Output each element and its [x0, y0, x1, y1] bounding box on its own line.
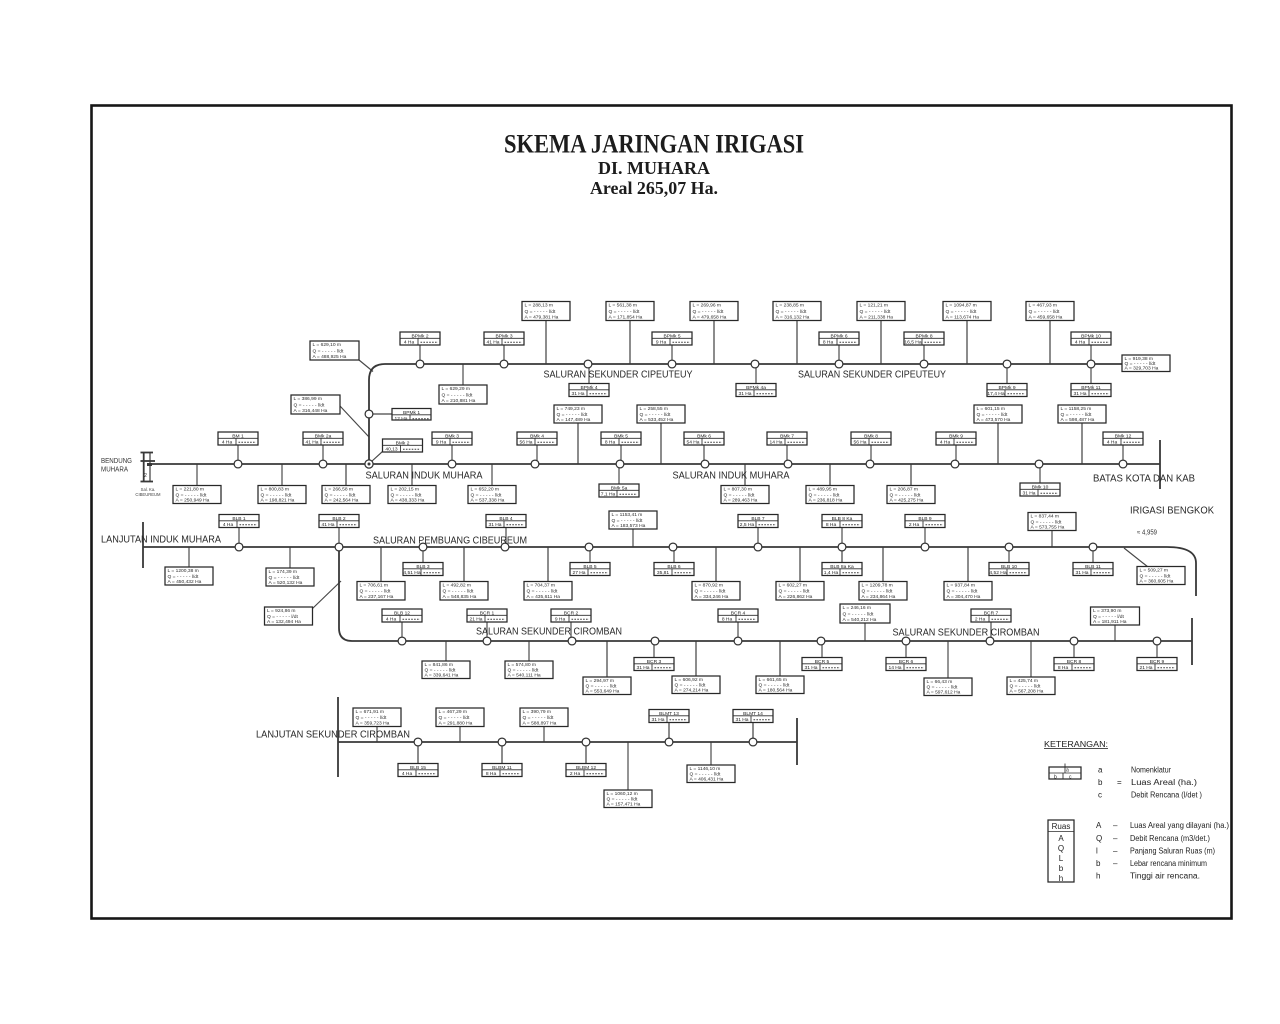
- svg-text:Q = - - - - - l/dt: Q = - - - - - l/dt: [1140, 573, 1171, 579]
- svg-text:Q = - - - - - l/dt: Q = - - - - - l/dt: [695, 589, 726, 595]
- svg-text:A = 597,612 Ha: A = 597,612 Ha: [927, 690, 961, 696]
- svg-text:2: 2: [144, 473, 147, 479]
- svg-text:–: –: [1113, 847, 1118, 856]
- svg-text:A = 236,818 Ha: A = 236,818 Ha: [809, 498, 843, 504]
- svg-text:31 Ha: 31 Ha: [636, 665, 649, 671]
- svg-text:L = 246,16 m: L = 246,16 m: [843, 605, 872, 611]
- svg-text:A = 147,489 Ha: A = 147,489 Ha: [557, 417, 591, 423]
- svg-text:l: l: [1096, 847, 1098, 856]
- svg-text:Q = - - - - - l/dt: Q = - - - - - l/dt: [640, 412, 671, 418]
- svg-text:L = 924,86 m: L = 924,86 m: [267, 608, 296, 614]
- svg-text:Luas Areal (ha.): Luas Areal (ha.): [1131, 778, 1197, 787]
- svg-text:L = 467,29 m: L = 467,29 m: [439, 709, 468, 715]
- svg-text:BPMk 1: BPMk 1: [403, 410, 420, 416]
- svg-text:8 Ha: 8 Ha: [823, 340, 834, 346]
- svg-text:Q = - - - - - l/dt: Q = - - - - - l/dt: [313, 348, 344, 354]
- svg-text:Areal 265,07 Ha.: Areal 265,07 Ha.: [590, 178, 718, 198]
- svg-text:Q = - - - - - l/dt: Q = - - - - - l/dt: [523, 715, 554, 721]
- svg-text:BLB 15: BLB 15: [410, 765, 426, 771]
- svg-text:BCR 3: BCR 3: [647, 659, 662, 665]
- svg-text:SKEMA JARINGAN IRIGASI: SKEMA JARINGAN IRIGASI: [504, 130, 804, 159]
- svg-text:BMk 9: BMk 9: [949, 433, 963, 439]
- svg-text:BLMT 14: BLMT 14: [743, 711, 763, 717]
- svg-text:BPMk 10: BPMk 10: [1081, 333, 1101, 339]
- svg-text:Q: Q: [1096, 834, 1102, 843]
- svg-text:A = 113,674 Ha: A = 113,674 Ha: [946, 315, 980, 321]
- svg-text:A = 520,132 Ha: A = 520,132 Ha: [269, 580, 303, 586]
- svg-text:Q = - - - - - l/dt: Q = - - - - - l/dt: [471, 492, 502, 498]
- svg-text:–: –: [1113, 834, 1118, 843]
- svg-text:Q = - - - - - l/dt: Q = - - - - - l/dt: [356, 715, 387, 721]
- svg-text:4 Ha: 4 Ha: [940, 440, 951, 446]
- svg-text:b: b: [1098, 778, 1103, 787]
- svg-text:A = 180,564 Ha: A = 180,564 Ha: [759, 688, 793, 694]
- svg-text:BLB 2: BLB 2: [332, 516, 346, 522]
- svg-text:21 Ha: 21 Ha: [469, 617, 482, 623]
- svg-text:Q = - - - - - l/dt: Q = - - - - - l/dt: [779, 589, 810, 595]
- svg-text:L = 1209,78 m: L = 1209,78 m: [862, 583, 893, 589]
- svg-text:L = 202,15 m: L = 202,15 m: [391, 487, 420, 493]
- svg-text:31 Ha: 31 Ha: [651, 717, 664, 723]
- svg-text:L = 661,65 m: L = 661,65 m: [759, 677, 788, 683]
- svg-text:9 Ha: 9 Ha: [436, 440, 447, 446]
- svg-text:L = 1146,10 m: L = 1146,10 m: [690, 766, 721, 772]
- svg-text:BLB 8 Ka: BLB 8 Ka: [832, 516, 853, 522]
- svg-text:BPMk 3: BPMk 3: [495, 333, 512, 339]
- svg-text:L = 174,39 m: L = 174,39 m: [269, 569, 298, 575]
- svg-text:L = 288,13 m: L = 288,13 m: [525, 303, 554, 309]
- svg-text:SALURAN SEKUNDER CIROMBAN: SALURAN SEKUNDER CIROMBAN: [893, 628, 1040, 639]
- svg-text:L = 602,27 m: L = 602,27 m: [779, 583, 808, 589]
- svg-text:Q = - - - - - l/dt: Q = - - - - - l/dt: [609, 309, 640, 315]
- svg-text:Q = - - - - - l/dt: Q = - - - - - l/dt: [862, 589, 893, 595]
- svg-text:SALURAN SEKUNDER CIPEUTEUY: SALURAN SEKUNDER CIPEUTEUY: [798, 370, 946, 381]
- svg-text:A = 329,703 Ha: A = 329,703 Ha: [1125, 366, 1159, 372]
- svg-text:Q = - - - - - l/dt: Q = - - - - - l/dt: [269, 575, 300, 581]
- svg-text:Q = - - - - - l/dt: Q = - - - - - l/dt: [557, 412, 588, 418]
- svg-text:7,1 Ha: 7,1 Ha: [601, 492, 616, 498]
- svg-text:Nomenklatur: Nomenklatur: [1131, 766, 1171, 775]
- svg-text:Q = - - - - - l/dt: Q = - - - - - l/dt: [693, 309, 724, 315]
- svg-text:Q = - - - - - l/dt: Q = - - - - - l/dt: [1029, 309, 1060, 315]
- svg-text:41 Ha: 41 Ha: [321, 522, 334, 528]
- svg-text:Q = - - - - - l/dt: Q = - - - - - l/dt: [525, 309, 556, 315]
- svg-text:L = 870,92 m: L = 870,92 m: [695, 583, 724, 589]
- svg-text:A = 459,658 Ha: A = 459,658 Ha: [1029, 315, 1063, 321]
- svg-text:BLMT 13: BLMT 13: [659, 711, 679, 717]
- svg-text:A = 289,463 Ha: A = 289,463 Ha: [724, 498, 758, 504]
- svg-text:Q = - - - - - l/dt: Q = - - - - - l/dt: [267, 614, 298, 620]
- svg-text:A = 291,880 Ha: A = 291,880 Ha: [439, 721, 473, 727]
- svg-text:BCR 4: BCR 4: [731, 610, 746, 616]
- svg-text:A = 537,338 Ha: A = 537,338 Ha: [471, 498, 505, 504]
- svg-text:c: c: [1098, 791, 1102, 800]
- svg-text:31 Ha: 31 Ha: [735, 717, 748, 723]
- svg-text:L: L: [1059, 854, 1064, 863]
- svg-text:Q = - - - - - l/dt: Q = - - - - - l/dt: [890, 492, 921, 498]
- svg-text:L = 258,55 m: L = 258,55 m: [640, 406, 669, 412]
- svg-text:54 Ha: 54 Ha: [686, 440, 699, 446]
- svg-text:Q = - - - - - l/dt: Q = - - - - - l/dt: [294, 402, 325, 408]
- svg-text:L = 66,43 m: L = 66,43 m: [927, 679, 953, 685]
- svg-text:Q = - - - - - l/dt: Q = - - - - - l/dt: [261, 492, 292, 498]
- svg-text:A = 183,573 Ha: A = 183,573 Ha: [612, 523, 646, 529]
- svg-text:A = 210,881 Ha: A = 210,881 Ha: [442, 398, 476, 404]
- svg-text:BLB 5: BLB 5: [583, 564, 597, 570]
- svg-text:35,81: 35,81: [657, 570, 670, 576]
- svg-text:4 Ha: 4 Ha: [223, 522, 234, 528]
- svg-text:L = 425,74 m: L = 425,74 m: [1010, 678, 1039, 684]
- svg-text:Q = - - - - - l/dt: Q = - - - - - l/dt: [860, 309, 891, 315]
- svg-text:L = 206,87 m: L = 206,87 m: [890, 487, 919, 493]
- svg-text:L = 1060,12 m: L = 1060,12 m: [607, 791, 638, 797]
- svg-text:BENDUNG: BENDUNG: [101, 458, 132, 465]
- svg-text:L = 837,44 m: L = 837,44 m: [1031, 514, 1060, 520]
- svg-text:4,52 Ha: 4,52 Ha: [989, 570, 1006, 576]
- svg-text:8 Ha: 8 Ha: [1058, 665, 1069, 671]
- svg-text:Q = - - - - - l/dt: Q = - - - - - l/dt: [442, 392, 473, 398]
- svg-text:A = 450,432 Ha: A = 450,432 Ha: [168, 579, 202, 585]
- svg-text:A = 598,487 Ha: A = 598,487 Ha: [1061, 417, 1095, 423]
- svg-text:MUHARA: MUHARA: [101, 467, 128, 474]
- svg-text:L = 492,82 m: L = 492,82 m: [443, 583, 472, 589]
- svg-text:Q = - - - - - l/dt: Q = - - - - - l/dt: [439, 715, 470, 721]
- svg-text:L = 652,20 m: L = 652,20 m: [471, 487, 500, 493]
- svg-text:Tinggi air rencana.: Tinggi air rencana.: [1130, 872, 1200, 881]
- svg-text:IRIGASI BENGKOK: IRIGASI BENGKOK: [1130, 506, 1214, 517]
- svg-text:8 Ha: 8 Ha: [605, 440, 616, 446]
- svg-text:17,4 Ha: 17,4 Ha: [987, 391, 1004, 397]
- svg-text:–: –: [1113, 821, 1118, 830]
- svg-text:BCR 5: BCR 5: [815, 659, 830, 665]
- svg-text:a: a: [1098, 766, 1103, 775]
- svg-text:Ruas: Ruas: [1052, 822, 1071, 831]
- svg-text:BLB 10: BLB 10: [1001, 564, 1017, 570]
- svg-text:A = 226,862 Ha: A = 226,862 Ha: [779, 594, 813, 600]
- svg-text:h: h: [1059, 874, 1063, 883]
- svg-text:Q = - - - - - l/dt: Q = - - - - - l/dt: [977, 412, 1008, 418]
- svg-text:A = 488,925 Ha: A = 488,925 Ha: [313, 354, 347, 360]
- svg-text:2 Ha: 2 Ha: [909, 522, 920, 528]
- svg-text:A = 211,338 Ha: A = 211,338 Ha: [860, 315, 894, 321]
- svg-text:SALURAN INDUK MUHARA: SALURAN INDUK MUHARA: [366, 471, 483, 482]
- svg-text:31 Ha: 31 Ha: [488, 522, 501, 528]
- svg-text:BPMk 4a: BPMk 4a: [746, 385, 766, 391]
- svg-text:BPMk 6: BPMk 6: [830, 333, 847, 339]
- svg-text:2 Ha: 2 Ha: [570, 771, 581, 777]
- svg-text:BCR 1: BCR 1: [480, 610, 495, 616]
- svg-text:BMk 6: BMk 6: [697, 433, 711, 439]
- svg-text:=: =: [1117, 778, 1122, 787]
- svg-text:Luas Areal yang dilayani (ha.: Luas Areal yang dilayani (ha.): [1130, 821, 1229, 830]
- svg-text:31 Ha: 31 Ha: [1073, 391, 1086, 397]
- svg-text:BLB 6: BLB 6: [667, 564, 681, 570]
- svg-text:BCR 7: BCR 7: [984, 610, 999, 616]
- svg-text:BMk 2a: BMk 2a: [315, 433, 332, 439]
- svg-text:A = 242,564 Ha: A = 242,564 Ha: [325, 498, 359, 504]
- svg-text:L = 509,27 m: L = 509,27 m: [1140, 568, 1169, 574]
- svg-text:SALURAN SEKUNDER CIPEUTEUY: SALURAN SEKUNDER CIPEUTEUY: [544, 370, 693, 381]
- svg-text:8 Ha: 8 Ha: [722, 617, 733, 623]
- svg-text:Q = - - - - - l/dt: Q = - - - - - l/dt: [946, 309, 977, 315]
- svg-text:8 Ha: 8 Ha: [486, 771, 497, 777]
- svg-text:16,5 Ha: 16,5 Ha: [904, 340, 921, 346]
- svg-text:L = 238,85 m: L = 238,85 m: [776, 303, 805, 309]
- svg-text:SALURAN INDUK MUHARA: SALURAN INDUK MUHARA: [673, 471, 790, 482]
- svg-text:L = 1200,38 m: L = 1200,38 m: [168, 568, 199, 574]
- svg-text:BMk 12: BMk 12: [1115, 433, 1132, 439]
- svg-text:L = 489,95 m: L = 489,95 m: [809, 487, 838, 493]
- svg-text:L = 386,99 m: L = 386,99 m: [294, 396, 323, 402]
- svg-text:L = 606,92 m: L = 606,92 m: [675, 677, 704, 683]
- svg-text:–: –: [1113, 859, 1118, 868]
- svg-text:A = 234,864 Ha: A = 234,864 Ha: [862, 594, 896, 600]
- svg-text:Q = - - - - - l/dt: Q = - - - - - l/dt: [776, 309, 807, 315]
- svg-text:31 Ha: 31 Ha: [571, 391, 584, 397]
- svg-text:b: b: [1059, 864, 1064, 873]
- svg-text:A = 274,214 Ha: A = 274,214 Ha: [675, 688, 709, 694]
- svg-text:4 Ha: 4 Ha: [222, 440, 233, 446]
- svg-text:A: A: [1058, 834, 1064, 843]
- svg-text:L = 561,38 m: L = 561,38 m: [609, 303, 638, 309]
- svg-text:27 Ha: 27 Ha: [572, 570, 585, 576]
- svg-text:Lebar rencana minimum: Lebar rencana minimum: [1130, 859, 1207, 868]
- svg-text:LANJUTAN INDUK MUHARA: LANJUTAN INDUK MUHARA: [101, 535, 221, 546]
- svg-text:BLB 3: BLB 3: [416, 564, 430, 570]
- svg-text:L = 390,79 m: L = 390,79 m: [523, 709, 552, 715]
- svg-text:A = 548,835 Ha: A = 548,835 Ha: [443, 594, 477, 600]
- svg-text:Q = - - - - - l/dt: Q = - - - - - l/dt: [1061, 412, 1092, 418]
- svg-text:2 Ha: 2 Ha: [975, 617, 986, 623]
- svg-text:A = 573,755 Ha: A = 573,755 Ha: [1031, 525, 1065, 531]
- svg-text:BMk 5a: BMk 5a: [611, 485, 628, 491]
- svg-text:L = 601,15 m: L = 601,15 m: [977, 406, 1006, 412]
- svg-text:BPMk 4: BPMk 4: [580, 385, 597, 391]
- svg-text:L = 221,80 m: L = 221,80 m: [176, 487, 205, 493]
- svg-text:A = 588,897 Ha: A = 588,897 Ha: [523, 721, 557, 727]
- svg-text:DI. MUHARA: DI. MUHARA: [598, 158, 710, 178]
- svg-text:A = 479,658 Ha: A = 479,658 Ha: [693, 315, 727, 321]
- svg-text:L = 121,21 m: L = 121,21 m: [860, 303, 889, 309]
- svg-text:A: A: [1096, 821, 1102, 830]
- svg-text:Panjang Saluran Ruas (m): Panjang Saluran Ruas (m): [1130, 847, 1215, 856]
- svg-text:31 Ha: 31 Ha: [1075, 570, 1088, 576]
- svg-text:56 Ha: 56 Ha: [519, 440, 532, 446]
- svg-text:b: b: [1096, 859, 1101, 868]
- svg-text:A = 316,132 Ha: A = 316,132 Ha: [776, 315, 810, 321]
- svg-text:A = 435,611 Ha: A = 435,611 Ha: [527, 594, 561, 600]
- svg-text:Q = - - - - - l/dt: Q = - - - - - l/dt: [843, 611, 874, 617]
- svg-text:4 Ha: 4 Ha: [402, 771, 413, 777]
- svg-text:A = 540,111 Ha: A = 540,111 Ha: [508, 673, 541, 679]
- svg-text:BLB 11: BLB 11: [1085, 564, 1101, 570]
- svg-text:40,13: 40,13: [385, 447, 398, 453]
- svg-text:A = 334,246 Ha: A = 334,246 Ha: [695, 594, 729, 600]
- svg-text:A = 553,649 Ha: A = 553,649 Ha: [586, 689, 620, 695]
- svg-text:Q = - - - - - l/dt: Q = - - - - - l/dt: [612, 518, 643, 524]
- svg-text:41 Ha: 41 Ha: [486, 340, 499, 346]
- svg-text:A = 540,212 Ha: A = 540,212 Ha: [843, 617, 877, 623]
- svg-text:L = 749,23 m: L = 749,23 m: [557, 406, 586, 412]
- svg-text:31 Ha: 31 Ha: [738, 391, 751, 397]
- svg-text:L = 937,84 m: L = 937,84 m: [947, 583, 976, 589]
- svg-text:A = 171,854 Ha: A = 171,854 Ha: [609, 315, 643, 321]
- svg-text:L = 841,86 m: L = 841,86 m: [425, 662, 454, 668]
- svg-text:31 Ha: 31 Ha: [1022, 491, 1035, 497]
- svg-text:CIBEUREUM: CIBEUREUM: [135, 492, 161, 497]
- svg-text:A = 316,448 Ha: A = 316,448 Ha: [294, 408, 328, 414]
- svg-text:L = 266,58 m: L = 266,58 m: [325, 487, 354, 493]
- svg-text:Q = - - - - - l/dt: Q = - - - - - l/dt: [1093, 614, 1124, 620]
- svg-text:A = 567,208 Ha: A = 567,208 Ha: [1010, 689, 1044, 695]
- svg-text:BLBM 12: BLBM 12: [576, 765, 596, 771]
- svg-text:Debit Rencana (m3/det.): Debit Rencana (m3/det.): [1130, 834, 1210, 843]
- svg-text:8 Ha: 8 Ha: [826, 522, 837, 528]
- svg-text:Q = - - - - - l/dt: Q = - - - - - l/dt: [724, 492, 755, 498]
- svg-text:9 Ha: 9 Ha: [656, 340, 667, 346]
- svg-text:Q = - - - - - l/dt: Q = - - - - - l/dt: [1031, 519, 1062, 525]
- svg-text:56 Ha: 56 Ha: [853, 440, 866, 446]
- svg-text:BPMk 11: BPMk 11: [1081, 385, 1101, 391]
- svg-text:A = 198,821 Ha: A = 198,821 Ha: [261, 498, 295, 504]
- svg-text:4 Ha: 4 Ha: [1107, 440, 1118, 446]
- svg-text:BPMk 5: BPMk 5: [663, 333, 680, 339]
- svg-text:A = 406,431 Ha: A = 406,431 Ha: [690, 777, 724, 783]
- svg-text:SALURAN PEMBUANG CIBEUREUM: SALURAN PEMBUANG CIBEUREUM: [373, 536, 527, 547]
- svg-text:Q = - - - - - l/dt: Q = - - - - - l/dt: [176, 492, 207, 498]
- svg-text:Q = - - - - - l/dt: Q = - - - - - l/dt: [809, 492, 840, 498]
- svg-text:L = 373,90 m: L = 373,90 m: [1093, 608, 1122, 614]
- svg-text:31 Ha: 31 Ha: [804, 665, 817, 671]
- svg-text:SALURAN SEKUNDER CIROMBAN: SALURAN SEKUNDER CIROMBAN: [476, 627, 622, 638]
- svg-text:Q = - - - - - l/dt: Q = - - - - - l/dt: [391, 492, 422, 498]
- svg-text:Q = - - - - - l/dt: Q = - - - - - l/dt: [360, 589, 391, 595]
- svg-text:A = 304,470 Ha: A = 304,470 Ha: [947, 594, 981, 600]
- svg-text:4 Ha: 4 Ha: [1075, 340, 1086, 346]
- svg-text:≈ 4,959: ≈ 4,959: [1137, 530, 1157, 537]
- svg-text:9 Ha: 9 Ha: [555, 617, 566, 623]
- svg-text:Q = - - - - - l/dt: Q = - - - - - l/dt: [947, 589, 978, 595]
- svg-text:A = 157,471 Ha: A = 157,471 Ha: [607, 802, 641, 808]
- svg-text:BCR 9: BCR 9: [1150, 659, 1165, 665]
- svg-text:a: a: [1066, 768, 1069, 774]
- svg-text:Debit Rencana (l/det ): Debit Rencana (l/det ): [1131, 791, 1202, 800]
- svg-text:L = 706,61 m: L = 706,61 m: [360, 583, 389, 589]
- svg-text:BMk 5: BMk 5: [614, 433, 628, 439]
- svg-text:L = 574,80 m: L = 574,80 m: [508, 662, 537, 668]
- svg-text:BLB 8a Ka: BLB 8a Ka: [830, 564, 854, 570]
- svg-text:L = 1153,41 m: L = 1153,41 m: [612, 512, 643, 518]
- svg-text:Q: Q: [1058, 844, 1064, 853]
- svg-text:4 Ha: 4 Ha: [386, 617, 397, 623]
- svg-text:BLB 4: BLB 4: [499, 516, 513, 522]
- svg-text:A = 132,494 Ha: A = 132,494 Ha: [267, 619, 301, 625]
- svg-text:L = 629,29 m: L = 629,29 m: [442, 386, 471, 392]
- svg-text:L = 704,37 m: L = 704,37 m: [527, 583, 556, 589]
- svg-text:BPMk 8: BPMk 8: [915, 333, 932, 339]
- svg-text:BLB 1: BLB 1: [232, 516, 246, 522]
- svg-text:4 Ha: 4 Ha: [404, 340, 415, 346]
- svg-text:BMk 3: BMk 3: [445, 433, 459, 439]
- svg-text:A = 250,949 Ha: A = 250,949 Ha: [176, 498, 210, 504]
- svg-text:L = 1158,25 m: L = 1158,25 m: [1061, 406, 1092, 412]
- svg-text:BCR 8: BCR 8: [1067, 659, 1082, 665]
- svg-text:A = 425,275 Ha: A = 425,275 Ha: [890, 498, 924, 504]
- svg-text:BLB 9: BLB 9: [918, 516, 932, 522]
- svg-text:BMk 10: BMk 10: [1032, 484, 1049, 490]
- svg-text:L = 467,93 m: L = 467,93 m: [1029, 303, 1058, 309]
- svg-text:Q = - - - - - l/dt: Q = - - - - - l/dt: [168, 574, 199, 580]
- svg-text:Q = - - - - - l/dt: Q = - - - - - l/dt: [443, 589, 474, 595]
- svg-text:BMk 2: BMk 2: [396, 440, 410, 446]
- svg-text:L = 269,96 m: L = 269,96 m: [693, 303, 722, 309]
- svg-text:41 Ha: 41 Ha: [305, 440, 318, 446]
- svg-text:2,5 Ha: 2,5 Ha: [740, 522, 755, 528]
- svg-text:h: h: [1096, 872, 1100, 881]
- svg-text:BLBM 11: BLBM 11: [492, 765, 512, 771]
- svg-text:BMk 7: BMk 7: [780, 433, 794, 439]
- svg-text:BPMk 9: BPMk 9: [998, 385, 1015, 391]
- svg-text:BPMk 2: BPMk 2: [411, 333, 428, 339]
- svg-text:14 Ha: 14 Ha: [769, 440, 782, 446]
- svg-text:L = 629,10 m: L = 629,10 m: [313, 342, 342, 348]
- svg-text:L = 294,97 m: L = 294,97 m: [586, 678, 615, 684]
- svg-text:21 Ha: 21 Ha: [1139, 665, 1152, 671]
- svg-text:14 Ha: 14 Ha: [888, 665, 901, 671]
- svg-text:12 Ha: 12 Ha: [394, 416, 407, 422]
- svg-text:A = 479,381 Ha: A = 479,381 Ha: [525, 315, 559, 321]
- svg-text:A = 359,723 Ha: A = 359,723 Ha: [356, 721, 390, 727]
- svg-text:L = 800,83 m: L = 800,83 m: [261, 487, 290, 493]
- svg-text:A = 237,167 Ha: A = 237,167 Ha: [360, 594, 394, 600]
- svg-text:BLB 12: BLB 12: [394, 610, 410, 616]
- svg-text:A = 533,452 Ha: A = 533,452 Ha: [640, 417, 674, 423]
- svg-text:BMk 4: BMk 4: [530, 433, 544, 439]
- svg-text:BM 1: BM 1: [232, 433, 244, 439]
- svg-text:A = 438,333 Ha: A = 438,333 Ha: [391, 498, 425, 504]
- svg-text:BLB 7: BLB 7: [751, 516, 765, 522]
- svg-text:BMk 8: BMk 8: [864, 433, 878, 439]
- svg-text:BATAS KOTA DAN KAB: BATAS KOTA DAN KAB: [1093, 474, 1195, 485]
- svg-text:BCR 6: BCR 6: [899, 659, 914, 665]
- svg-text:b: b: [1054, 775, 1057, 781]
- svg-text:A = 339,641 Ha: A = 339,641 Ha: [425, 673, 459, 679]
- svg-text:A = 473,570 Ha: A = 473,570 Ha: [977, 417, 1011, 423]
- svg-text:A = 360,605 Ha: A = 360,605 Ha: [1140, 579, 1174, 585]
- svg-text:Q = - - - - - l/dt: Q = - - - - - l/dt: [325, 492, 356, 498]
- svg-text:L = 671,91 m: L = 671,91 m: [356, 709, 385, 715]
- svg-text:Q = - - - - - l/dt: Q = - - - - - l/dt: [527, 589, 558, 595]
- svg-text:KETERANGAN:: KETERANGAN:: [1044, 740, 1108, 749]
- svg-text:L = 807,30 m: L = 807,30 m: [724, 487, 753, 493]
- svg-text:BCR 2: BCR 2: [564, 610, 579, 616]
- svg-text:4,51 Ha: 4,51 Ha: [403, 570, 420, 576]
- svg-text:1,4 Ha: 1,4 Ha: [824, 570, 839, 576]
- svg-text:A = 181,911 Ha: A = 181,911 Ha: [1093, 619, 1127, 625]
- svg-text:LANJUTAN SEKUNDER CIROMBAN: LANJUTAN SEKUNDER CIROMBAN: [256, 730, 410, 741]
- svg-text:L = 1094,87 m: L = 1094,87 m: [946, 303, 977, 309]
